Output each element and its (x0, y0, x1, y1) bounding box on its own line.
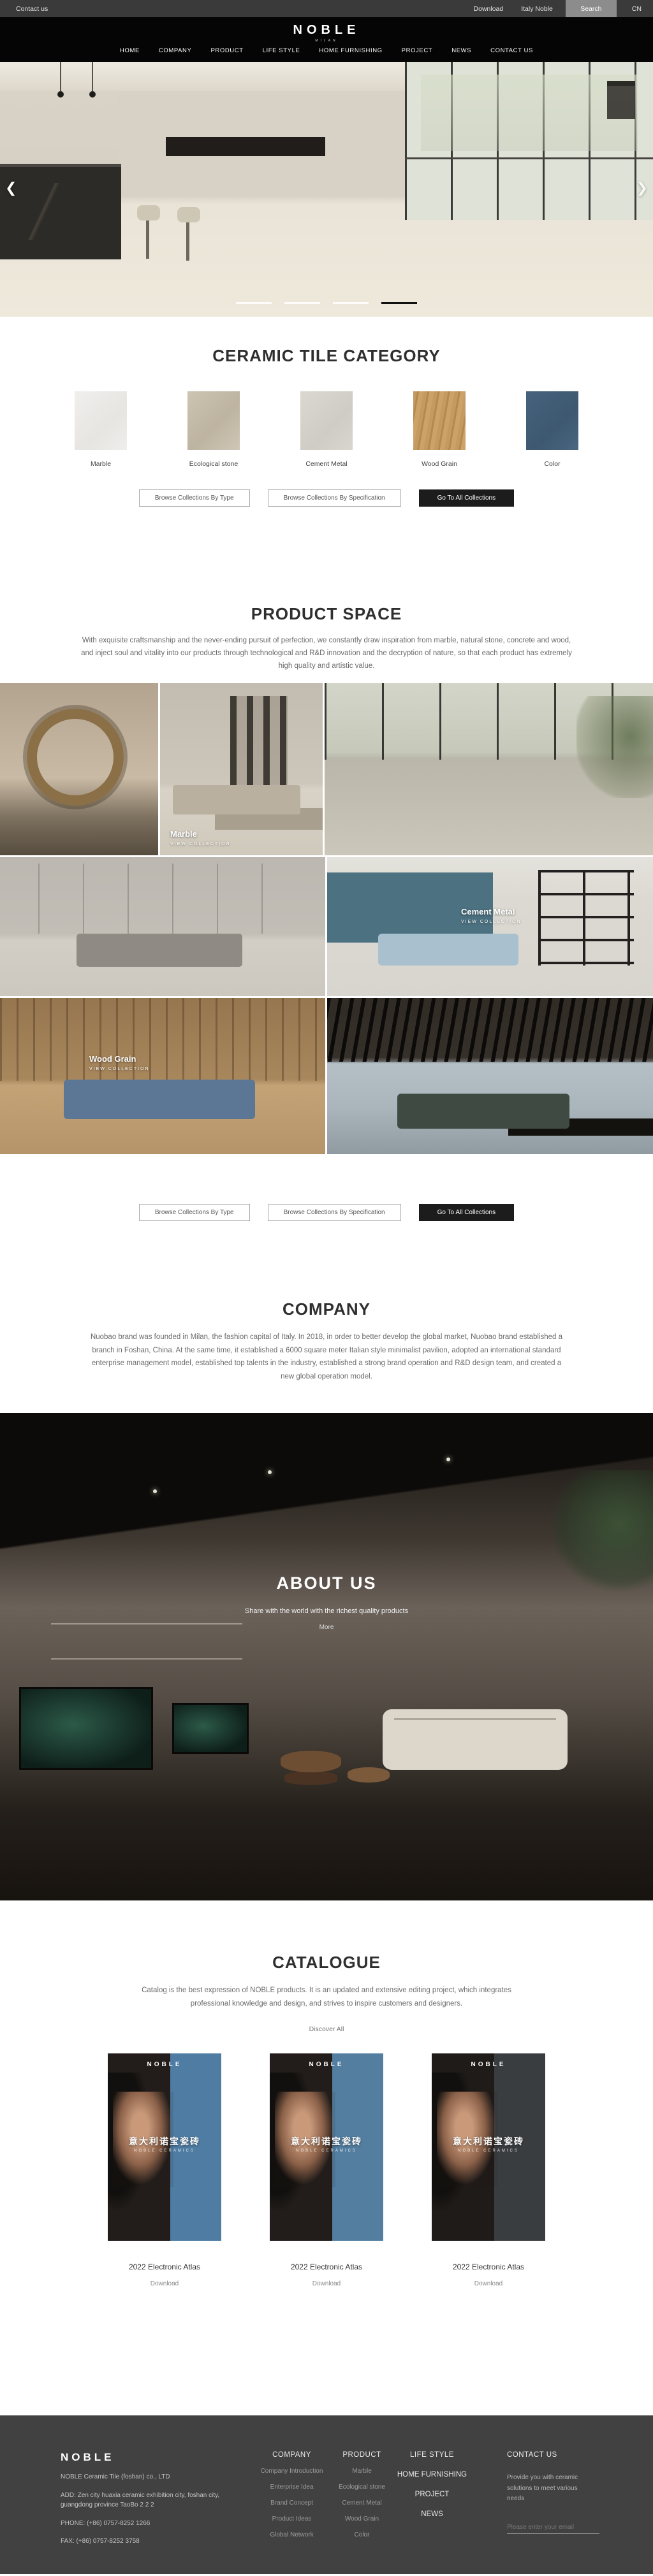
catalogue-title: CATALOGUE (0, 1953, 653, 1972)
about-image-shelf (51, 1658, 242, 1660)
about-us-banner[interactable]: ABOUT US Share with the world with the r… (0, 1413, 653, 1900)
footer-company-name: NOBLE Ceramic Tile (foshan) co., LTD (61, 2472, 242, 2482)
catalogue-covers-row: NOBLE 意大利诺宝瓷砖 NOBLE CERAMICS 2022 Electr… (0, 2053, 653, 2287)
about-image-sofa (383, 1709, 568, 1770)
catalogue-download-link[interactable]: Download (432, 2280, 545, 2287)
collection-name: Marble (170, 829, 231, 839)
collection-name: Cement Metal (461, 907, 522, 916)
footer-link-marble[interactable]: Marble (328, 2468, 395, 2475)
collection-buttons-row: Browse Collections By Type Browse Collec… (0, 1204, 653, 1221)
cover-title-chinese: 意大利诺宝瓷砖 (270, 2135, 383, 2148)
about-image-coffee-table (348, 1767, 390, 1783)
footer-link-wood-grain[interactable]: Wood Grain (328, 2515, 395, 2522)
product-space-paragraph: With exquisite craftsmanship and the nev… (78, 634, 575, 672)
nav-life-style[interactable]: LIFE STYLE (263, 47, 300, 54)
hero-image-pendant-lamp (57, 91, 64, 98)
nav-home-furnishing[interactable]: HOME FURNISHING (319, 47, 382, 54)
swatch-label: Color (526, 460, 578, 468)
top-bar-right: Download Italy Noble Search CN (465, 0, 653, 17)
about-image-spotlight (446, 1458, 450, 1461)
site-header: NOBLE MILAN HOME COMPANY PRODUCT LIFE ST… (0, 17, 653, 62)
collection-buttons-row: Browse Collections By Type Browse Collec… (0, 489, 653, 507)
catalogue-item: NOBLE 意大利诺宝瓷砖 NOBLE CERAMICS 2022 Electr… (108, 2053, 221, 2287)
tile-swatch-wood-grain: Wood Grain (413, 391, 466, 468)
browse-by-type-button[interactable]: Browse Collections By Type (139, 1204, 250, 1221)
color-swatch-image[interactable] (526, 391, 578, 450)
company-title: COMPANY (0, 1299, 653, 1319)
footer-link-ecological-stone[interactable]: Ecological stone (328, 2484, 395, 2491)
footer-column-product: PRODUCT Marble Ecological stone Cement M… (328, 2451, 395, 2574)
catalogue-caption: 2022 Electronic Atlas (108, 2262, 221, 2271)
gallery-image-sofa (378, 934, 518, 966)
language-toggle-cn[interactable]: CN (632, 5, 642, 13)
nav-news[interactable]: NEWS (451, 47, 471, 54)
nav-project[interactable]: PROJECT (402, 47, 433, 54)
footer-contact-text: Provide you with ceramic solutions to me… (507, 2473, 590, 2505)
category-section-title: CERAMIC TILE CATEGORY (0, 346, 653, 366)
tile-swatch-ecological-stone: Ecological stone (187, 391, 240, 468)
footer-link-enterprise-idea[interactable]: Enterprise Idea (255, 2484, 328, 2491)
ecological-stone-swatch-image[interactable] (187, 391, 240, 450)
top-utility-bar: Contact us Download Italy Noble Search C… (0, 0, 653, 17)
catalogue-section: CATALOGUE Catalog is the best expression… (0, 1900, 653, 2415)
footer-link-global-network[interactable]: Global Network (255, 2531, 328, 2538)
footer-link-home-furnishing[interactable]: HOME FURNISHING (395, 2471, 469, 2478)
go-to-all-collections-button[interactable]: Go To All Collections (419, 1204, 515, 1221)
catalogue-paragraph: Catalog is the best expression of NOBLE … (129, 1984, 524, 2010)
gallery-image-wood-grain-room[interactable]: Wood Grain VIEW COLLECTION (0, 998, 325, 1154)
footer-company-info: NOBLE NOBLE Ceramic Tile (foshan) co., L… (61, 2451, 242, 2574)
hero-image-outdoor-light (421, 75, 638, 151)
search-button[interactable]: Search (566, 0, 617, 17)
gallery-image-terrace[interactable] (325, 683, 653, 855)
hero-image-kitchen-island (0, 164, 121, 259)
cover-title-chinese: 意大利诺宝瓷砖 (108, 2135, 221, 2148)
carousel-indicator[interactable] (236, 302, 272, 304)
footer-fax: FAX: (+86) 0757-8252 3758 (61, 2536, 242, 2547)
footer-contact-heading[interactable]: CONTACT US (507, 2451, 615, 2459)
footer-link-project[interactable]: PROJECT (395, 2491, 469, 2498)
italy-noble-link[interactable]: Italy Noble (521, 5, 553, 13)
newsletter-email-input[interactable] (507, 2521, 599, 2534)
cement-metal-swatch-image[interactable] (300, 391, 353, 450)
about-more-link[interactable]: More (0, 1624, 653, 1631)
carousel-indicator[interactable] (333, 302, 369, 304)
browse-by-specification-button[interactable]: Browse Collections By Specification (268, 489, 401, 507)
brand-logo-subtitle: MILAN (0, 39, 653, 43)
footer-column-company: COMPANY Company Introduction Enterprise … (255, 2451, 328, 2574)
footer-link-life-style[interactable]: LIFE STYLE (395, 2451, 469, 2459)
page: Contact us Download Italy Noble Search C… (0, 0, 653, 2574)
cover-subtitle: NOBLE CERAMICS (108, 2149, 221, 2153)
nav-home[interactable]: HOME (120, 47, 140, 54)
gallery-row-1: Marble VIEW COLLECTION (0, 683, 653, 855)
hero-image-bar-stool (177, 207, 200, 222)
discover-all-link[interactable]: Discover All (309, 2025, 344, 2033)
footer-brand-logo: NOBLE (61, 2451, 242, 2464)
catalogue-cover[interactable]: NOBLE 意大利诺宝瓷砖 NOBLE CERAMICS (270, 2053, 383, 2241)
footer-link-cement-metal[interactable]: Cement Metal (328, 2500, 395, 2507)
carousel-next-icon[interactable]: ❯ (636, 180, 648, 196)
gallery-row-3: Wood Grain VIEW COLLECTION (0, 998, 653, 1154)
tile-swatches-row: Marble Ecological stone Cement Metal Woo… (0, 391, 653, 468)
footer-link-product-ideas[interactable]: Product Ideas (255, 2515, 328, 2522)
catalogue-download-link[interactable]: Download (270, 2280, 383, 2287)
nav-product[interactable]: PRODUCT (210, 47, 243, 54)
catalogue-caption: 2022 Electronic Atlas (270, 2262, 383, 2271)
about-image-coffee-table (281, 1751, 341, 1772)
browse-by-type-button[interactable]: Browse Collections By Type (139, 489, 250, 507)
gallery-image-gray-living-room[interactable] (0, 857, 325, 996)
hero-image-pendant-lamp (89, 91, 96, 98)
view-collection-link[interactable]: VIEW COLLECTION (170, 842, 231, 846)
gallery-image-marble-room[interactable]: Marble VIEW COLLECTION (160, 683, 323, 855)
footer-address: ADD: Zen city huaxia ceramic exhibition … (61, 2491, 242, 2510)
carousel-indicators (0, 302, 653, 304)
brand-logo[interactable]: NOBLE (0, 17, 653, 38)
swatch-label: Wood Grain (413, 460, 466, 468)
product-space-title: PRODUCT SPACE (0, 604, 653, 624)
footer-column-nav: LIFE STYLE HOME FURNISHING PROJECT NEWS (395, 2451, 469, 2574)
hero-image-bar-stool (137, 205, 160, 221)
view-collection-link[interactable]: VIEW COLLECTION (89, 1067, 150, 1071)
contact-us-link[interactable]: Contact us (16, 5, 48, 13)
footer-phone: PHONE: (+86) 0757-8252 1266 (61, 2519, 242, 2529)
about-us-tagline: Share with the world with the richest qu… (0, 1607, 653, 1615)
view-collection-link[interactable]: VIEW COLLECTION (461, 920, 522, 924)
wood-grain-collection-label: Wood Grain VIEW COLLECTION (89, 1054, 150, 1071)
footer-link-news[interactable]: NEWS (395, 2510, 469, 2518)
tile-swatch-marble: Marble (75, 391, 127, 468)
footer-link-brand-concept[interactable]: Brand Concept (255, 2500, 328, 2507)
site-footer: NOBLE NOBLE Ceramic Tile (foshan) co., L… (0, 2415, 653, 2574)
tile-swatch-color: Color (526, 391, 578, 468)
download-link[interactable]: Download (474, 5, 504, 13)
catalogue-cover[interactable]: NOBLE 意大利诺宝瓷砖 NOBLE CERAMICS (432, 2053, 545, 2241)
about-overlay: ABOUT US Share with the world with the r… (0, 1574, 653, 1631)
company-paragraph: Nuobao brand was founded in Milan, the f… (84, 1331, 569, 1384)
gallery-row-2: Cement Metal VIEW COLLECTION (0, 857, 653, 996)
gallery-image-cement-metal-room[interactable]: Cement Metal VIEW COLLECTION (327, 857, 653, 996)
carousel-indicator[interactable] (284, 302, 320, 304)
about-image-tv-screen (19, 1687, 153, 1770)
nav-contact-us[interactable]: CONTACT US (490, 47, 533, 54)
footer-company-heading[interactable]: COMPANY (255, 2451, 328, 2459)
footer-link-color[interactable]: Color (328, 2531, 395, 2538)
about-image-spotlight (268, 1470, 272, 1474)
cover-brand-logo: NOBLE (108, 2061, 221, 2068)
marble-swatch-image[interactable] (75, 391, 127, 450)
swatch-label: Marble (75, 460, 127, 468)
wood-grain-swatch-image[interactable] (413, 391, 466, 450)
ceramic-tile-category-section: CERAMIC TILE CATEGORY Marble Ecological … (0, 317, 653, 593)
product-space-section: PRODUCT SPACE With exquisite craftsmansh… (0, 593, 653, 683)
cover-brand-logo: NOBLE (270, 2061, 383, 2068)
collection-name: Wood Grain (89, 1054, 150, 1064)
catalogue-caption: 2022 Electronic Atlas (432, 2262, 545, 2271)
footer-link-company-introduction[interactable]: Company Introduction (255, 2468, 328, 2475)
catalogue-cover[interactable]: NOBLE 意大利诺宝瓷砖 NOBLE CERAMICS (108, 2053, 221, 2241)
company-section: COMPANY Nuobao brand was founded in Mila… (0, 1273, 653, 1413)
footer-contact-column: CONTACT US Provide you with ceramic solu… (507, 2451, 615, 2574)
about-us-title: ABOUT US (0, 1574, 653, 1593)
cement-metal-collection-label: Cement Metal VIEW COLLECTION (461, 907, 522, 924)
catalogue-download-link[interactable]: Download (108, 2280, 221, 2287)
nav-company[interactable]: COMPANY (159, 47, 192, 54)
carousel-prev-icon[interactable]: ❮ (5, 180, 17, 196)
catalogue-item: NOBLE 意大利诺宝瓷砖 NOBLE CERAMICS 2022 Electr… (432, 2053, 545, 2287)
swatch-label: Cement Metal (300, 460, 353, 468)
carousel-indicator-active[interactable] (381, 302, 417, 304)
hero-carousel: ❮ ❯ (0, 62, 653, 317)
footer-product-heading[interactable]: PRODUCT (328, 2451, 395, 2459)
catalogue-item: NOBLE 意大利诺宝瓷砖 NOBLE CERAMICS 2022 Electr… (270, 2053, 383, 2287)
gallery-image-dark-slat-room[interactable] (327, 998, 653, 1154)
hero-image-coat-rack (607, 81, 635, 138)
go-to-all-collections-button[interactable]: Go To All Collections (419, 489, 515, 507)
browse-by-specification-button[interactable]: Browse Collections By Specification (268, 1204, 401, 1221)
gallery-image-lobby[interactable] (0, 683, 158, 855)
hero-image-fireplace (166, 137, 325, 156)
tile-swatch-cement-metal: Cement Metal (300, 391, 353, 468)
about-image-tv-screen (172, 1703, 249, 1754)
cover-brand-logo: NOBLE (432, 2061, 545, 2068)
collection-buttons-section: Browse Collections By Type Browse Collec… (0, 1154, 653, 1273)
about-image-spotlight (153, 1489, 157, 1493)
cover-title-chinese: 意大利诺宝瓷砖 (432, 2135, 545, 2148)
marble-collection-label: Marble VIEW COLLECTION (170, 829, 231, 846)
product-space-gallery: Marble VIEW COLLECTION Cement Metal VIEW… (0, 683, 653, 1154)
cover-subtitle: NOBLE CERAMICS (270, 2149, 383, 2153)
swatch-label: Ecological stone (187, 460, 240, 468)
main-nav: HOME COMPANY PRODUCT LIFE STYLE HOME FUR… (0, 47, 653, 54)
cover-subtitle: NOBLE CERAMICS (432, 2149, 545, 2153)
